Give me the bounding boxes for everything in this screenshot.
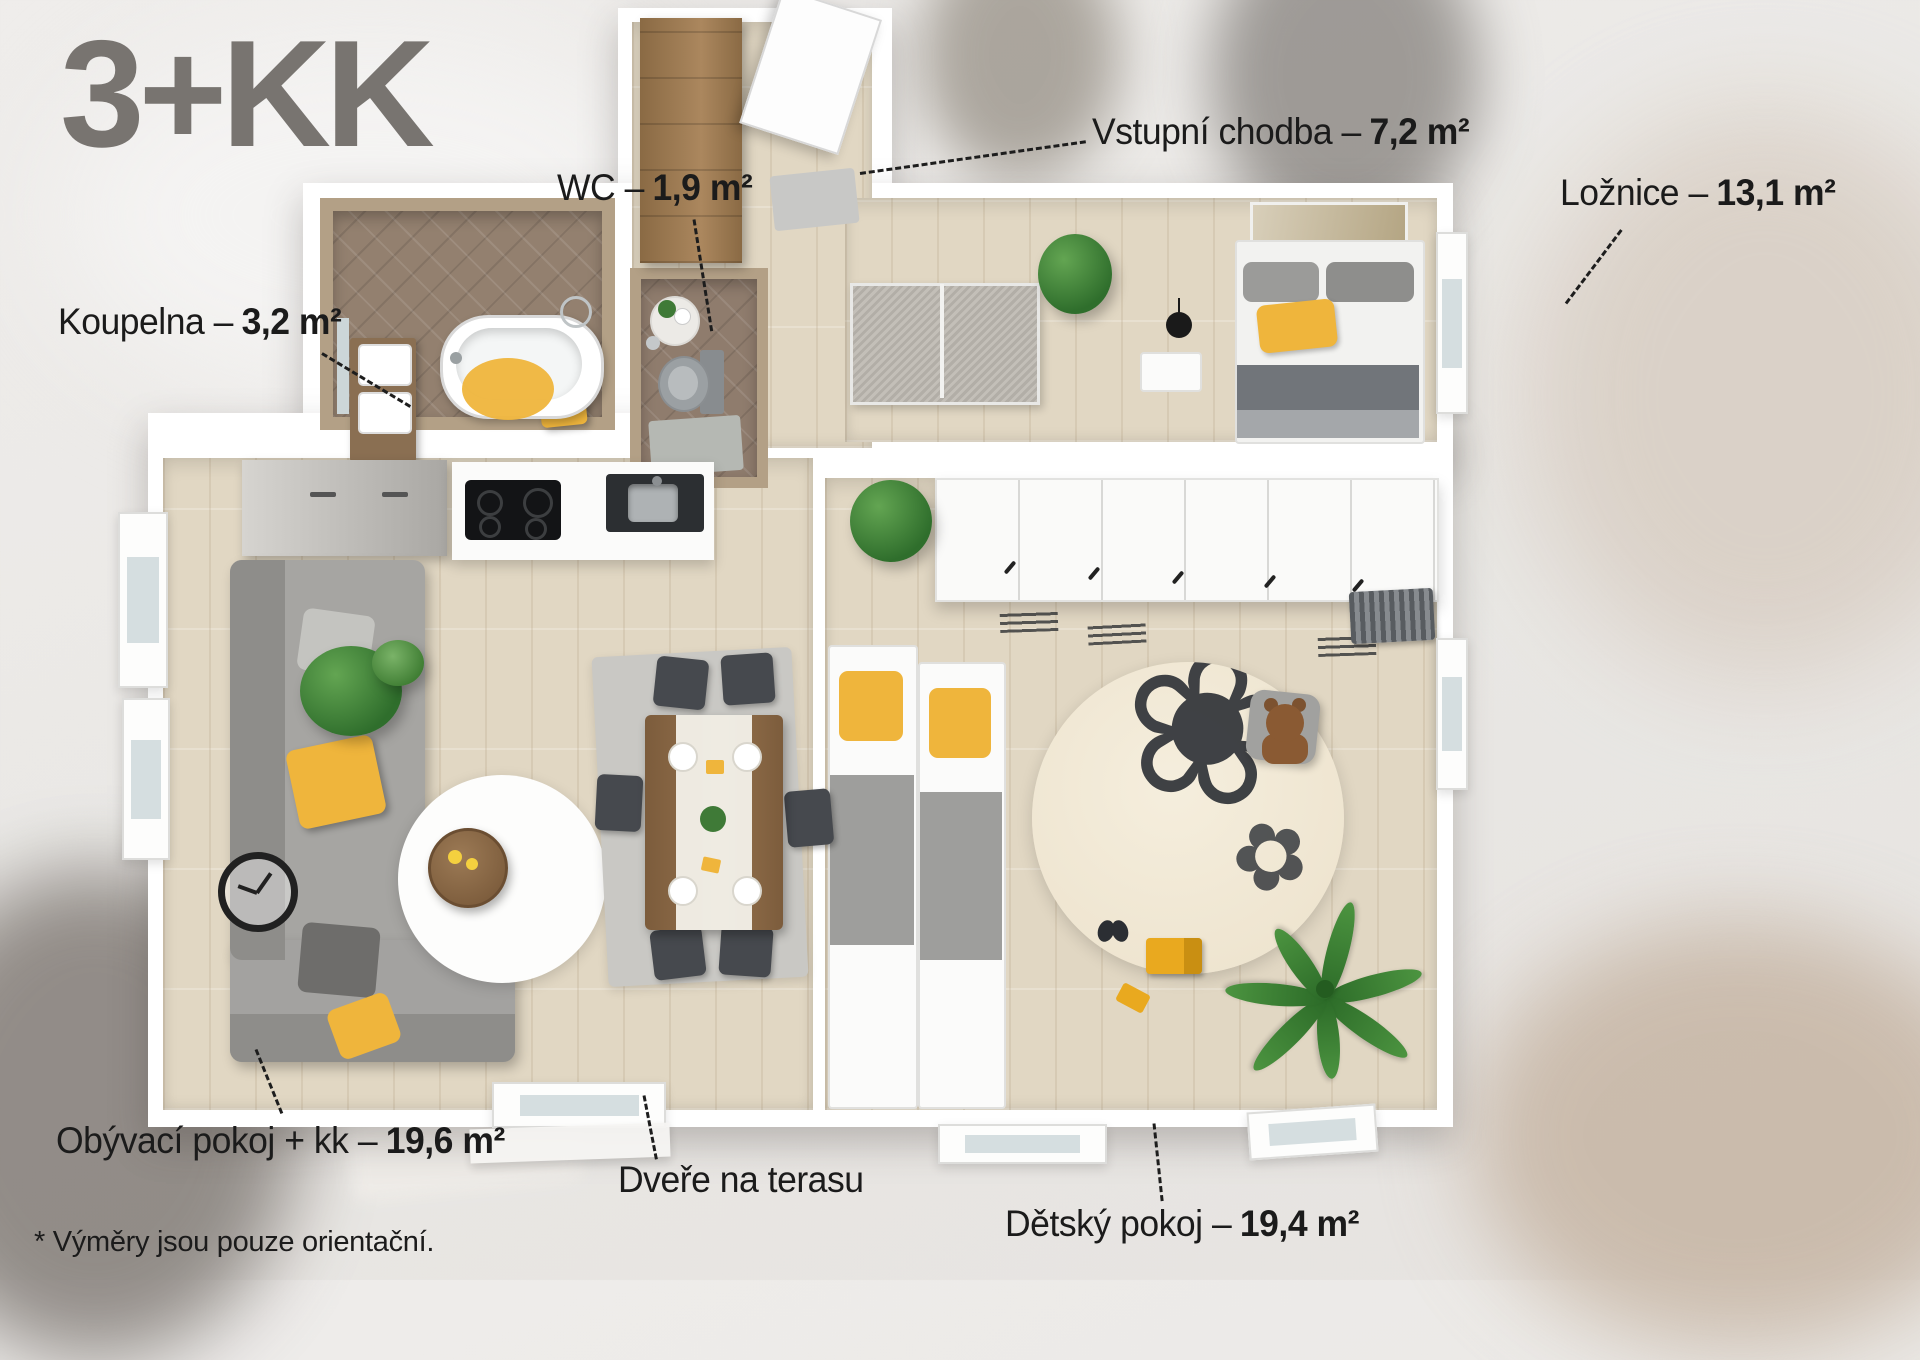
plate (668, 876, 698, 906)
plan-type-title: 3+KK (60, 18, 429, 170)
kitchen-sink (628, 484, 678, 522)
leader-line-bedroom (1565, 229, 1623, 304)
terrace-door-glass (520, 1095, 639, 1116)
label-wc: WC –1,9 m² (557, 168, 752, 209)
pendant-lamp (1166, 312, 1192, 338)
leader-line-kids (1153, 1123, 1164, 1201)
napkin-yellow (706, 760, 724, 774)
towel-ring (560, 296, 592, 328)
burner (523, 488, 553, 518)
kids-window (1246, 1104, 1378, 1161)
butterfly-print (1109, 918, 1131, 944)
fruit-bowl (466, 858, 478, 870)
kids-bed-blanket (920, 792, 1002, 960)
bathroom-sink (358, 392, 412, 434)
label-terrace-door: Dveře na terasu (618, 1160, 864, 1201)
clock-hand (238, 884, 258, 895)
annotation-text: Dveře na terasu (618, 1159, 864, 1200)
palm-trunk (1316, 980, 1334, 998)
kitchen-faucet (652, 476, 662, 486)
door-mat (769, 168, 859, 232)
burner (477, 490, 503, 516)
window-glass (127, 557, 159, 643)
background-pendant-lamp-silhouette (920, 0, 1120, 180)
bed-pillow-gray (1243, 262, 1319, 302)
label-bathroom: Koupelna –3,2 m² (58, 302, 341, 343)
room-area: 19,4 m² (1240, 1203, 1359, 1244)
toilet-brush (646, 336, 660, 350)
bedroom-plant (1038, 234, 1112, 314)
burner (479, 516, 501, 538)
room-name: Vstupní chodba – (1092, 111, 1361, 152)
bed-pillow-yellow (1256, 298, 1339, 354)
clock-hand (255, 872, 272, 894)
plate (668, 742, 698, 772)
kids-bed-pillow-yellow (839, 671, 903, 741)
shoe-rack-marks (1000, 611, 1059, 633)
sofa-pillow-dark (297, 922, 381, 999)
dining-chair (784, 788, 835, 848)
plate (732, 876, 762, 906)
label-kids: Dětský pokoj –19,4 m² (1005, 1204, 1359, 1245)
room-name: Obývací pokoj + kk – (56, 1120, 377, 1161)
bedroom-window (1436, 232, 1468, 414)
label-living: Obývací pokoj + kk –19,6 m² (56, 1121, 505, 1162)
kids-bed-blanket (830, 775, 914, 945)
room-name: Ložnice – (1560, 172, 1708, 213)
room-area: 1,9 m² (653, 167, 753, 208)
dining-chair (595, 774, 644, 832)
table-centerpiece (700, 806, 726, 832)
nightstand (1140, 352, 1202, 392)
room-area: 7,2 m² (1369, 111, 1469, 152)
wall-clock (218, 852, 298, 932)
kids-bed (918, 662, 1006, 1109)
dining-chair (720, 652, 775, 706)
bedroom-wardrobe-divider (940, 284, 944, 398)
bath-faucet (450, 352, 462, 364)
toilet-seat (668, 366, 698, 400)
room-area: 13,1 m² (1716, 172, 1835, 213)
dining-chair (649, 925, 707, 981)
window-glass (1442, 279, 1462, 368)
kids-bed-pillow-yellow (929, 688, 991, 758)
cooktop (465, 480, 561, 540)
room-name: Koupelna – (58, 301, 233, 342)
plate (732, 742, 762, 772)
kids-window (1436, 638, 1468, 790)
footnote: * Výměry jsou pouze orientační. (34, 1226, 434, 1259)
living-window (122, 698, 170, 860)
floorplan-page: { "title": "3+KK", "footnote": "* Výměry… (0, 0, 1920, 1280)
toy-truck-cab (1184, 938, 1202, 974)
hall-wardrobe (640, 18, 742, 263)
kitchen-tall-unit (242, 460, 447, 556)
shoe-rack-marks (1088, 622, 1147, 645)
room-name: WC – (557, 167, 644, 208)
kids-wardrobe (935, 478, 1439, 602)
kids-window (938, 1124, 1107, 1164)
room-area: 19,6 m² (386, 1120, 505, 1161)
bath-rug (462, 358, 554, 420)
bedroom-wardrobe (850, 283, 1040, 405)
room-area: 3,2 m² (242, 301, 342, 342)
palm-plant (1240, 900, 1410, 1080)
teddy-bear-head (1266, 704, 1304, 742)
kids-bed (828, 645, 918, 1109)
room-name: Dětský pokoj – (1005, 1203, 1231, 1244)
window-glass (1442, 677, 1462, 751)
background-beige-corner (1470, 920, 1920, 1350)
terrace-door (492, 1082, 666, 1128)
burner (525, 518, 547, 540)
window-glass (131, 740, 162, 819)
living-window (118, 512, 168, 688)
flower-blossom (674, 308, 691, 325)
label-bedroom: Ložnice –13,1 m² (1560, 173, 1835, 214)
living-plant-leaf (372, 640, 424, 686)
tall-unit-handle (310, 492, 336, 497)
window-glass (1268, 1118, 1357, 1146)
fruit-bowl (448, 850, 462, 864)
tall-unit-handle (382, 492, 408, 497)
dining-chair (718, 924, 773, 978)
bed-pillow-gray (1326, 262, 1414, 302)
dining-chair (653, 655, 710, 710)
label-hall: Vstupní chodba –7,2 m² (1092, 112, 1469, 153)
leader-line-hall (860, 140, 1086, 175)
bed-blanket-light (1237, 410, 1419, 438)
window-glass (965, 1135, 1081, 1153)
radiator (1349, 588, 1436, 644)
bed-blanket-dark (1237, 365, 1419, 410)
kids-bush-plant (850, 480, 932, 562)
